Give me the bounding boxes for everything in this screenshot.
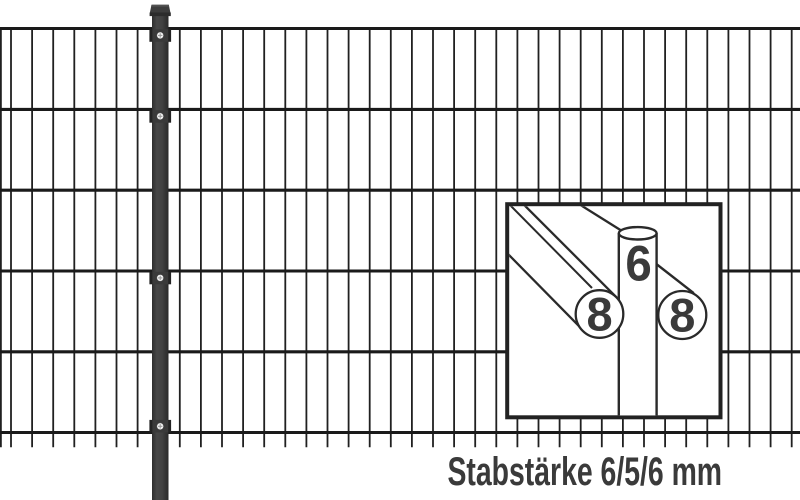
svg-text:8: 8 (586, 288, 612, 341)
svg-text:6: 6 (625, 236, 651, 291)
svg-text:8: 8 (669, 289, 695, 342)
svg-text:Stabstärke 6/5/6 mm: Stabstärke 6/5/6 mm (448, 450, 723, 494)
